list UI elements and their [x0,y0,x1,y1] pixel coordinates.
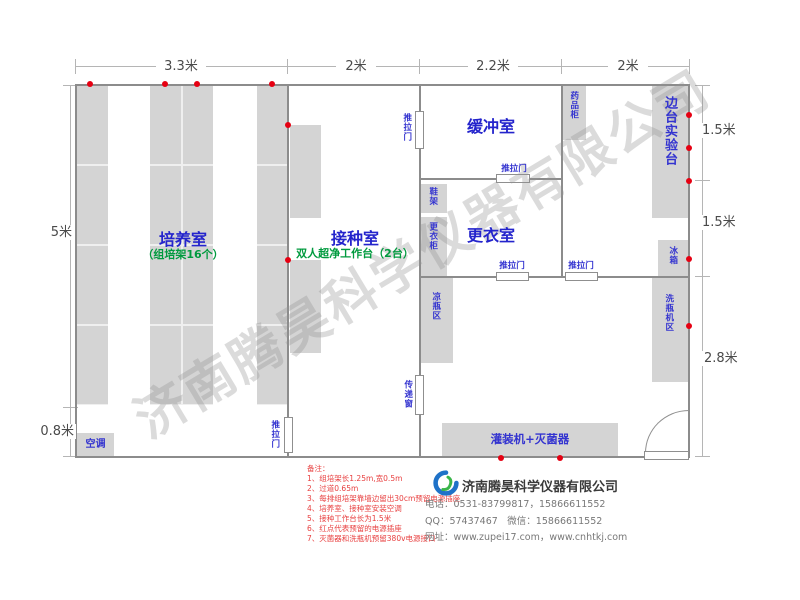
power-socket-dot [269,81,275,87]
power-socket-dot [557,455,563,461]
bottle-washer-label: 洗瓶机区 [663,294,673,366]
power-socket-dot [686,145,692,151]
air-conditioner-label: 空调 [77,433,114,457]
medicine-cabinet-label: 药品柜 [568,91,578,137]
culture-room-sub: （组培架16个） [110,246,256,262]
power-socket-dot [194,81,200,87]
company-qq-wechat: QQ：57437467 微信：15866611552 [425,513,602,527]
fridge-label: 冰箱 [667,246,677,272]
dim-left-bottom: 0.8米 [30,424,76,439]
dim-right-mid: 1.5米 [700,215,746,230]
sliding-door-changing-1 [496,272,529,281]
wall-outer-right [688,84,690,458]
power-socket-dot [686,323,692,329]
clean-bench-1 [290,125,321,218]
filling-sterilizer-label: 灌装机+灭菌器 [442,423,618,457]
sliding-door-label-buffer: 推拉门 [497,165,531,175]
culture-rack-column-right [257,86,287,405]
dim-top-4: 2米 [608,59,648,74]
power-socket-dot [686,256,692,262]
dim-line-left [70,85,71,457]
power-socket-dot [285,122,291,128]
shoe-rack-label: 鞋架 [427,187,437,211]
sliding-door-culture [284,417,293,453]
changing-room-name: 更衣室 [440,222,542,246]
dim-right-bottom: 2.8米 [702,351,748,366]
wall-outer-left [75,84,77,458]
sliding-door-label-culture: 推拉门 [269,420,279,452]
wardrobe-label: 更衣柜 [427,222,437,272]
side-bench-label: 边台实验台 [661,96,676,212]
power-socket-dot [162,81,168,87]
power-socket-dot [686,112,692,118]
power-socket-dot [87,81,93,87]
dim-top-2: 2米 [336,59,376,74]
dim-line-right [702,85,703,457]
sliding-door-buffer [496,174,530,183]
dim-right-top: 1.5米 [700,123,746,138]
power-socket-dot [498,455,504,461]
wall-changing-bottom [419,276,690,278]
dim-top-1: 3.3米 [156,59,206,74]
sliding-door-label-inoculation: 推拉门 [401,113,411,149]
sliding-door-changing-2 [565,272,598,281]
power-socket-dot [285,257,291,263]
dim-tick [695,85,710,86]
company-logo-icon [433,470,459,496]
company-website: 网址：www.zupei17.com，www.cnhtkj.com [425,529,627,543]
sliding-door-label-changing-1: 推拉门 [494,262,530,272]
dim-tick [561,59,562,74]
dim-tick [689,59,690,74]
dim-tick [695,276,710,277]
sliding-door-label-changing-2: 推拉门 [563,262,599,272]
cool-bottle-area-label: 凉瓶区 [430,292,440,350]
dim-left-height: 5米 [40,225,74,240]
dim-tick [75,59,76,74]
buffer-room-name: 缓冲室 [440,113,542,137]
dim-top-3: 2.2米 [468,59,518,74]
company-name: 济南腾昊科学仪器有限公司 [462,476,618,495]
wall-culture-inoculation [287,84,289,458]
power-socket-dot [686,178,692,184]
entry-door-leaf [644,451,689,460]
company-logo [433,470,459,496]
dim-tick [695,456,710,457]
inoculation-room-sub: 双人超净工作台（2台） [287,245,423,261]
dim-tick [695,180,710,181]
company-phone: 电话：0531-83799817，15866611552 [425,496,605,510]
floor-plan-page: 3.3米 2米 2.2米 2米 5米 0.8米 1.5米 1.5米 2.8米 [0,0,800,600]
entry-door-swing-arc [645,410,689,453]
culture-rack-column-left [77,86,108,405]
transfer-window [415,375,424,415]
wall-buffer-right [561,84,563,278]
sliding-door-inoculation-buffer [415,111,424,149]
dim-tick [287,59,288,74]
wall-buffer-bottom [419,178,563,180]
dim-tick [419,59,420,74]
transfer-window-label: 传递窗 [402,380,412,414]
clean-bench-2 [290,260,321,353]
